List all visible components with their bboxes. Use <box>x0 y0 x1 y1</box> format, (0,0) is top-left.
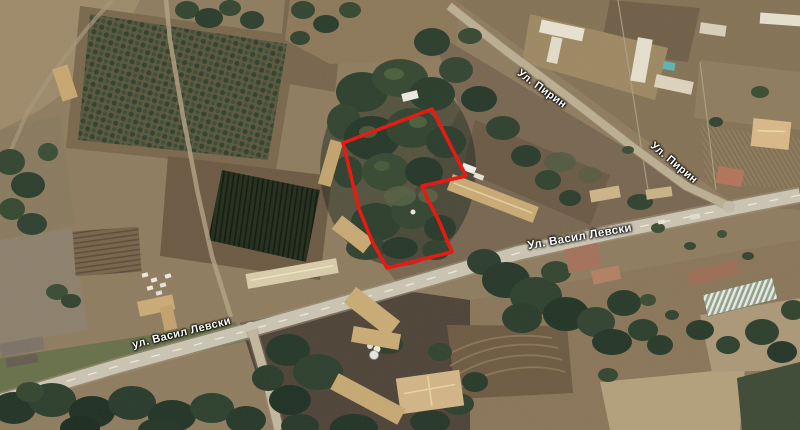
imagery-grain-overlay <box>0 0 800 430</box>
satellite-map-viewport[interactable]: Ул. Пирин Ул. Пирин Ул. Васил Левски ул.… <box>0 0 800 430</box>
satellite-imagery <box>0 0 800 430</box>
